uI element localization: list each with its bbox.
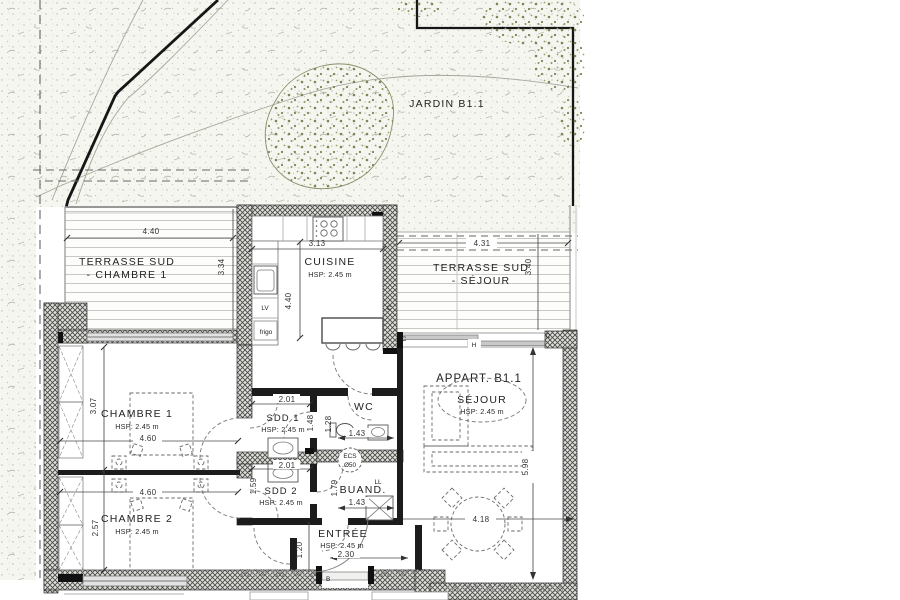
wall-kitchen-east: [383, 205, 397, 350]
nightstand: [194, 456, 208, 469]
kitchen-island: [322, 318, 383, 343]
door-label-h: H: [472, 342, 477, 349]
hsp-cuisine: HSP: 2.45 m: [308, 270, 352, 279]
wall-sejour-west: [397, 348, 403, 525]
wall-east: [563, 330, 577, 600]
dim-buand-width: 1.43: [349, 498, 366, 507]
bar-stool: [326, 344, 340, 350]
ecs-label: ECS: [343, 453, 356, 460]
pillow: [180, 444, 193, 457]
hsp-chambre1: HSP: 2.45 m: [115, 422, 159, 431]
room-label-buand: BUAND.: [340, 484, 387, 496]
hsp-sdd1: HSP: 2.45 m: [261, 425, 305, 434]
nightstand: [112, 479, 126, 492]
dim-entree-width: 2.30: [338, 550, 355, 559]
dim-terrace1-depth: 3.34: [217, 258, 226, 275]
terrace2-label-line2: - SÉJOUR: [452, 274, 511, 287]
ecs-water-heater: ECS Ø50: [338, 448, 362, 472]
dim-buand-depth: 1.79: [330, 479, 339, 496]
sofa: [424, 446, 532, 472]
dim-sdd2-width: 2.01: [279, 461, 296, 470]
dim-sdd1-width: 2.01: [279, 395, 296, 404]
hsp-sejour: HSP: 2.45 m: [460, 407, 504, 416]
sdd2: 2.01 1.59 SDD 2 HSP: 2.45 m: [249, 460, 313, 518]
wardrobe-chambre2: [59, 477, 83, 570]
terrace1-label-line2: - CHAMBRE 1: [87, 269, 168, 281]
wall-chambre-divider: [58, 470, 240, 475]
floor-plan-canvas: JARDIN B1.1 4.40 3.34 TERRASSE SUD - CHA…: [0, 0, 900, 600]
dim-terrace2-width: 4.31: [474, 239, 491, 248]
pillow: [180, 499, 193, 512]
dim-wc-depth: 1.28: [324, 415, 333, 432]
wall-mid: [237, 345, 252, 418]
dim-chambre1-depth: 3.07: [89, 397, 98, 414]
terrace1-label-line1: TERRASSE SUD: [79, 256, 175, 268]
pillow: [131, 444, 144, 457]
terrace2-label-line1: TERRASSE SUD: [433, 262, 529, 274]
room-label-sejour: SÉJOUR: [457, 393, 507, 406]
insulation: [240, 569, 322, 577]
door-swing-chambre2: [200, 478, 240, 518]
floor-plan-svg: JARDIN B1.1 4.40 3.34 TERRASSE SUD - CHA…: [0, 0, 900, 600]
door-label-c3: C: [546, 333, 551, 340]
bar-stool: [346, 344, 360, 350]
kitchen: LV frigo 3.13 4.40 CUISINE HSP: 2.45 m: [249, 216, 397, 394]
nightstand: [112, 456, 126, 469]
room-label-sdd1: SDD 1: [267, 413, 300, 424]
dim-sdd2-depth: 1.59: [249, 477, 258, 494]
door-label-c2: C: [402, 336, 407, 343]
cooktop: [313, 217, 343, 241]
door-label-c1: C: [387, 305, 392, 312]
fridge-label: frigo: [260, 329, 273, 336]
dim-chambre2-depth: 2.57: [91, 519, 100, 536]
hsp-entree: HSP: 2.45 m: [320, 541, 364, 550]
dim-wc-width: 1.43: [349, 429, 366, 438]
wall-west: [44, 303, 58, 593]
sdd1: 2.01 1.48 SDD 1 HSP: 2.45 m: [249, 394, 315, 458]
chambre1: 4.60 3.07 CHAMBRE 1 HSP: 2.45 m: [57, 344, 241, 573]
slider-panel: [400, 335, 478, 340]
hsp-sdd2: HSP: 2.45 m: [259, 498, 303, 507]
washbasin-sdd1: [268, 438, 298, 458]
room-label-sdd2: SDD 2: [265, 486, 298, 497]
dim-entree-depth: 1.20: [295, 541, 304, 558]
sejour: APPART. B1.1 SÉJOUR HSP: 2.45 m 4.18 5.9…: [403, 347, 574, 580]
dim-terrace1-width: 4.40: [143, 227, 160, 236]
dim-cuisine-depth: 4.40: [284, 292, 293, 309]
room-label-chambre1: CHAMBRE 1: [101, 408, 173, 420]
dim-sejour-depth: 5.98: [521, 458, 530, 475]
garden-label: JARDIN B1.1: [409, 98, 485, 110]
dishwasher-label: LV: [261, 305, 269, 312]
room-label-chambre2: CHAMBRE 2: [101, 513, 173, 525]
apartment-label: APPART. B1.1: [436, 373, 522, 385]
room-label-wc: WC: [354, 401, 374, 413]
ecs-diameter: Ø50: [344, 462, 357, 469]
bar-stool: [366, 344, 380, 350]
door-swing-chambre1: [200, 418, 240, 458]
dim-sdd1-depth: 1.48: [306, 414, 315, 431]
dim-chambre1-width: 4.60: [140, 434, 157, 443]
door-swing-closet: [254, 528, 290, 564]
chair: [442, 488, 462, 508]
room-label-entree: ENTRÉE: [318, 527, 368, 540]
pillow: [131, 499, 144, 512]
wall-kitchen-west: [237, 205, 252, 345]
room-label-cuisine: CUISINE: [305, 256, 356, 268]
door-label-b: B: [326, 576, 330, 583]
buanderie: LL BUAND. 1.43 1.79: [317, 466, 394, 520]
terrace-chambre1: 4.40 3.34 TERRASSE SUD - CHAMBRE 1: [64, 207, 237, 330]
chair: [442, 540, 462, 560]
dim-sejour-table: 4.18: [473, 515, 490, 524]
wc: WC 1.28 1.43: [324, 396, 394, 441]
dim-cuisine-width: 3.13: [309, 239, 326, 248]
dim-chambre2-width: 4.60: [140, 488, 157, 497]
hsp-chambre2: HSP: 2.45 m: [115, 527, 159, 536]
chambre2: 4.60 2.57 CHAMBRE 2 HSP: 2.45 m: [57, 477, 241, 570]
